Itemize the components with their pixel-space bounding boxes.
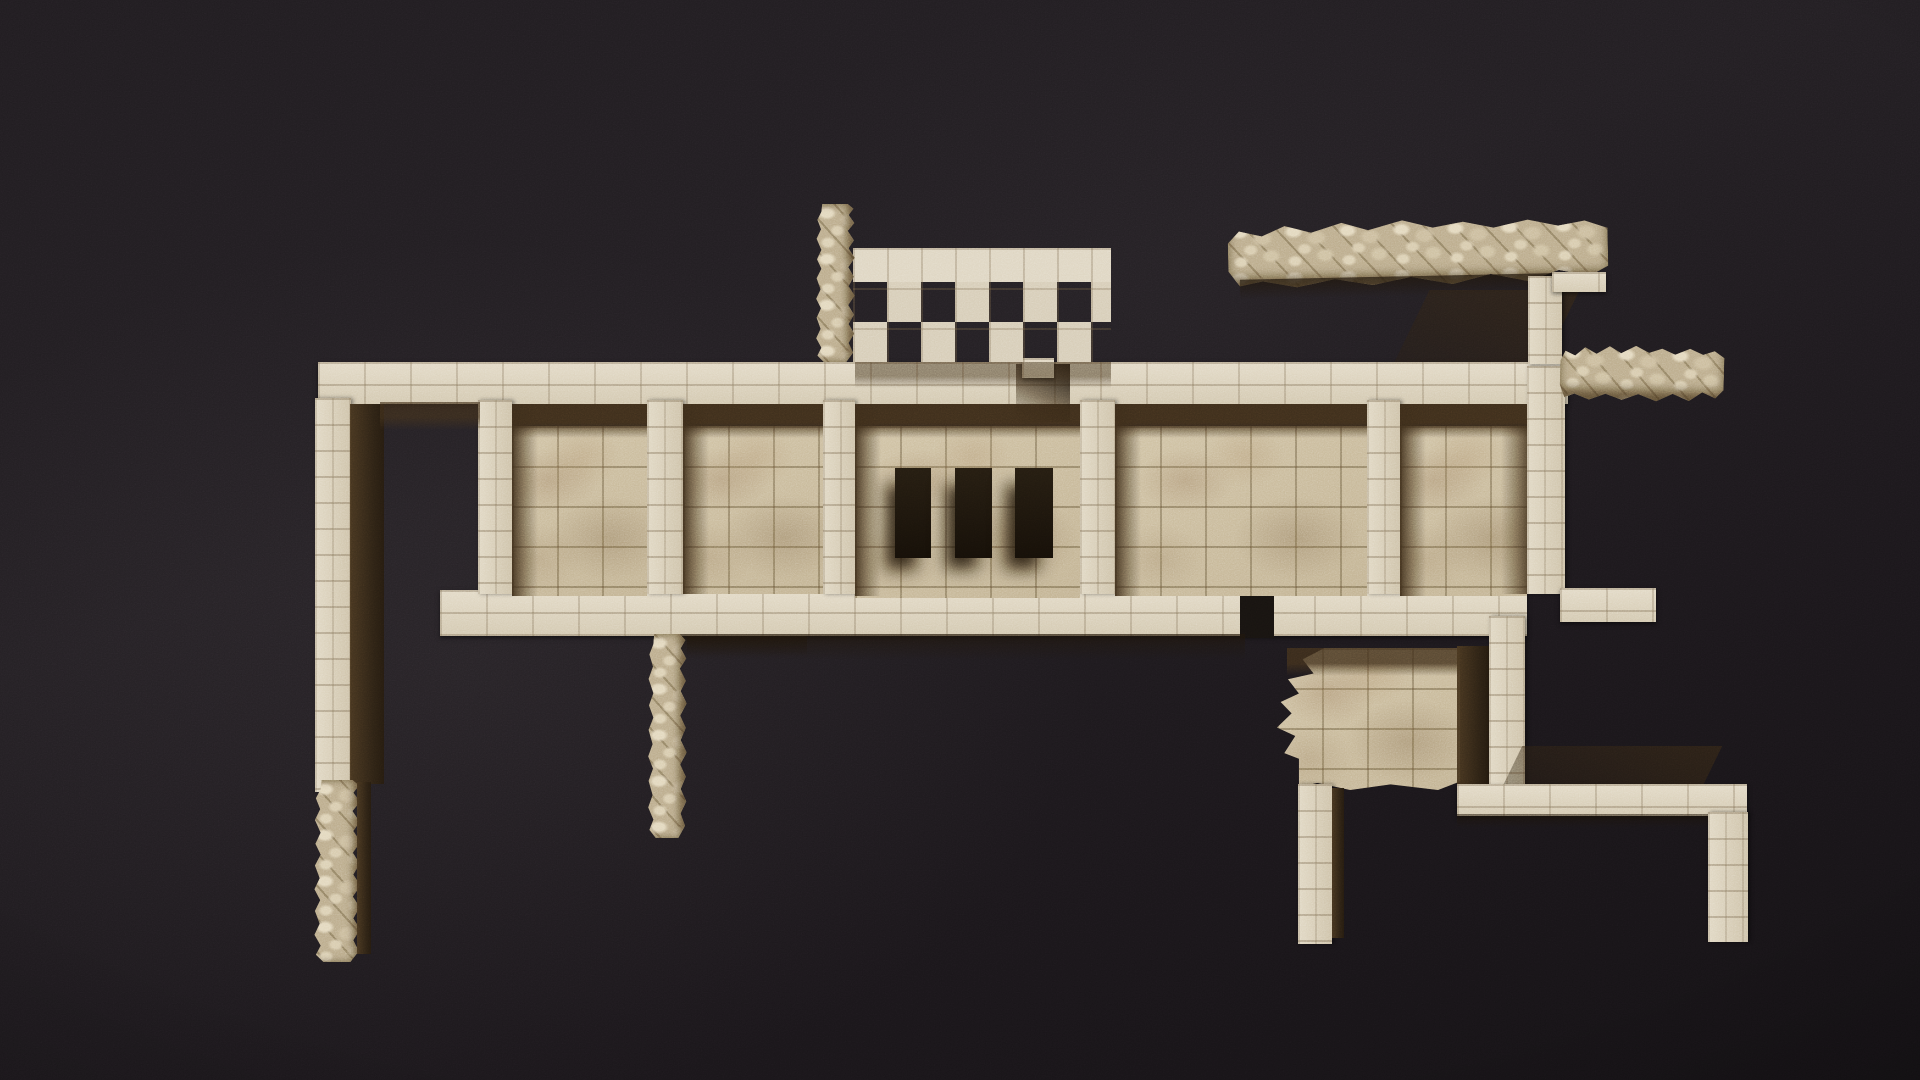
- lattice-under-shade: [855, 362, 1111, 388]
- window-slot-3: [1015, 468, 1053, 558]
- ne-connector-arm: [1552, 272, 1606, 292]
- bottom-bar: [1457, 784, 1747, 816]
- room-c-left-shade: [683, 404, 709, 594]
- platform-right-shade: [1457, 646, 1489, 790]
- floor-room-e: [1115, 426, 1367, 596]
- pillar-sw-shade: [1332, 788, 1344, 938]
- platform-se-top-shade: [1287, 648, 1460, 676]
- rubble-fragment-east: [1559, 344, 1724, 404]
- ruins-photo: [0, 0, 1920, 1080]
- right-outer-wall: [1527, 366, 1565, 594]
- pillar-se: [1708, 812, 1748, 942]
- divider-1: [478, 400, 512, 594]
- lattice-wall: [853, 248, 1111, 362]
- mid-pillar-cast-shadow: [687, 636, 807, 656]
- window-slot-1: [895, 468, 931, 558]
- divider-5: [1367, 400, 1400, 594]
- room-d-left-shade: [855, 404, 881, 596]
- bottom-bar-under-shade: [1457, 814, 1747, 828]
- top-pillar: [815, 204, 855, 362]
- room-b-left-shade: [512, 404, 538, 596]
- left-wall-inner-face: [350, 404, 384, 784]
- room-e-top-shade: [1115, 404, 1367, 438]
- mid-pillar: [647, 634, 687, 838]
- left-outer-wall: [315, 398, 351, 792]
- right-corner-arm: [1560, 588, 1656, 622]
- bar-pre-shadow: [1502, 746, 1722, 788]
- divider-3: [823, 400, 855, 594]
- divider-4: [1080, 400, 1115, 594]
- room-f-right-shade: [1501, 426, 1527, 594]
- room-e-left-shade: [1115, 404, 1141, 596]
- window-slot-2: [955, 468, 992, 558]
- divider-2: [647, 400, 683, 594]
- left-wall-rubble: [313, 780, 361, 962]
- left-wall-rubble-shadow: [357, 782, 371, 954]
- room-f-left-shade: [1400, 404, 1426, 596]
- pillar-sw-of-platform: [1298, 784, 1332, 944]
- room-a-top-shade: [380, 402, 480, 430]
- bottom-wall-notch: [1240, 596, 1274, 638]
